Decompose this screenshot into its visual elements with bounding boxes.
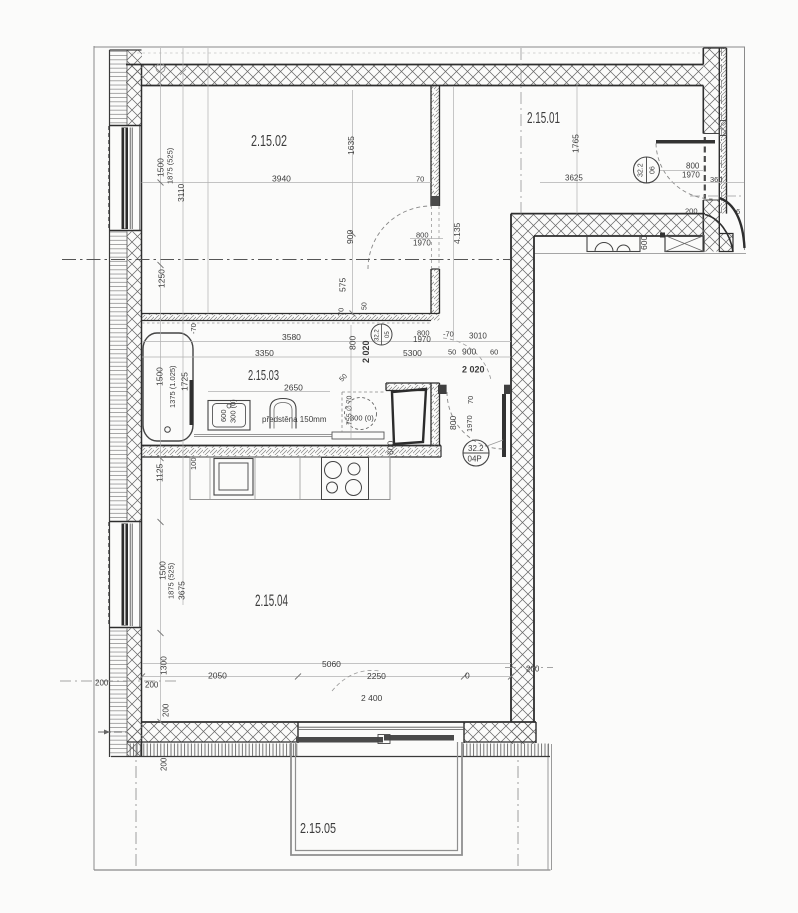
svg-text:200: 200 <box>162 703 171 717</box>
svg-text:3110: 3110 <box>176 183 186 202</box>
svg-text:50: 50 <box>362 302 369 310</box>
svg-text:200: 200 <box>685 207 698 216</box>
svg-text:1300: 1300 <box>159 656 169 675</box>
svg-text:2.15.01: 2.15.01 <box>527 110 560 127</box>
svg-text:60: 60 <box>490 348 498 357</box>
svg-text:1375 (1.025): 1375 (1.025) <box>168 365 177 408</box>
svg-text:3580: 3580 <box>282 332 301 342</box>
svg-text:předstěna 150mm: předstěna 150mm <box>262 415 327 424</box>
svg-text:2650: 2650 <box>284 383 303 393</box>
svg-text:70: 70 <box>466 396 475 404</box>
svg-text:3010: 3010 <box>469 332 487 341</box>
svg-text:300 (0): 300 (0) <box>350 414 374 423</box>
svg-text:3940: 3940 <box>272 174 291 184</box>
svg-text:70: 70 <box>337 308 346 316</box>
svg-text:755 ∅ 70: 755 ∅ 70 <box>347 395 354 425</box>
svg-text:2.15.02: 2.15.02 <box>251 133 287 150</box>
svg-text:1970: 1970 <box>465 415 474 432</box>
svg-text:4.135: 4.135 <box>452 222 462 244</box>
svg-text:2.15.03: 2.15.03 <box>248 367 279 384</box>
svg-text:32.2: 32.2 <box>375 329 381 341</box>
svg-text:200: 200 <box>526 665 540 674</box>
svg-text:1970: 1970 <box>413 239 431 248</box>
svg-text:1970: 1970 <box>682 171 700 180</box>
svg-text:900: 900 <box>345 230 355 244</box>
svg-text:-70: -70 <box>443 330 454 339</box>
svg-text:2250: 2250 <box>367 671 386 681</box>
svg-text:3675: 3675 <box>177 581 187 600</box>
svg-text:1875 (525): 1875 (525) <box>167 562 176 599</box>
svg-text:600: 600 <box>386 441 396 455</box>
svg-text:900: 900 <box>462 347 476 357</box>
svg-text:300 (0): 300 (0) <box>229 399 238 423</box>
svg-text:32.2: 32.2 <box>638 163 645 177</box>
svg-text:800: 800 <box>348 336 358 350</box>
svg-text:0: 0 <box>465 671 470 681</box>
svg-text:2 020: 2 020 <box>361 340 371 363</box>
svg-text:1125: 1125 <box>155 463 165 482</box>
svg-text:1635: 1635 <box>346 136 356 155</box>
svg-text:-70: -70 <box>189 323 198 334</box>
svg-text:5300: 5300 <box>403 348 422 358</box>
svg-text:200: 200 <box>145 681 159 690</box>
svg-text:2 020: 2 020 <box>462 365 485 375</box>
svg-text:800: 800 <box>448 416 458 430</box>
svg-text:2.15.04: 2.15.04 <box>255 591 288 610</box>
svg-text:800: 800 <box>686 162 700 171</box>
svg-text:100: 100 <box>189 457 198 470</box>
svg-text:6: 6 <box>736 207 740 216</box>
svg-text:1500: 1500 <box>155 367 165 386</box>
svg-text:1765: 1765 <box>571 134 581 153</box>
svg-text:1725: 1725 <box>180 372 190 391</box>
svg-text:70: 70 <box>416 175 424 184</box>
svg-text:2050: 2050 <box>208 671 227 681</box>
svg-text:32.2: 32.2 <box>468 444 484 453</box>
svg-text:600: 600 <box>639 236 649 250</box>
svg-text:2 400: 2 400 <box>361 693 383 703</box>
svg-text:06: 06 <box>650 166 657 174</box>
svg-text:200: 200 <box>160 757 169 771</box>
svg-text:50: 50 <box>448 348 456 357</box>
svg-text:5060: 5060 <box>322 659 341 669</box>
svg-text:1875 (525): 1875 (525) <box>166 147 175 184</box>
svg-text:600: 600 <box>219 409 228 422</box>
svg-text:1250: 1250 <box>157 269 167 288</box>
svg-text:3625: 3625 <box>565 174 583 183</box>
svg-text:200: 200 <box>95 679 109 688</box>
svg-text:360: 360 <box>710 175 723 184</box>
svg-text:575: 575 <box>338 278 348 292</box>
svg-text:04P: 04P <box>468 455 482 464</box>
svg-text:2.15.05: 2.15.05 <box>300 820 336 837</box>
svg-text:05: 05 <box>385 331 391 338</box>
svg-text:1970: 1970 <box>413 335 431 344</box>
svg-text:1500: 1500 <box>156 158 166 177</box>
svg-text:3350: 3350 <box>255 348 274 358</box>
